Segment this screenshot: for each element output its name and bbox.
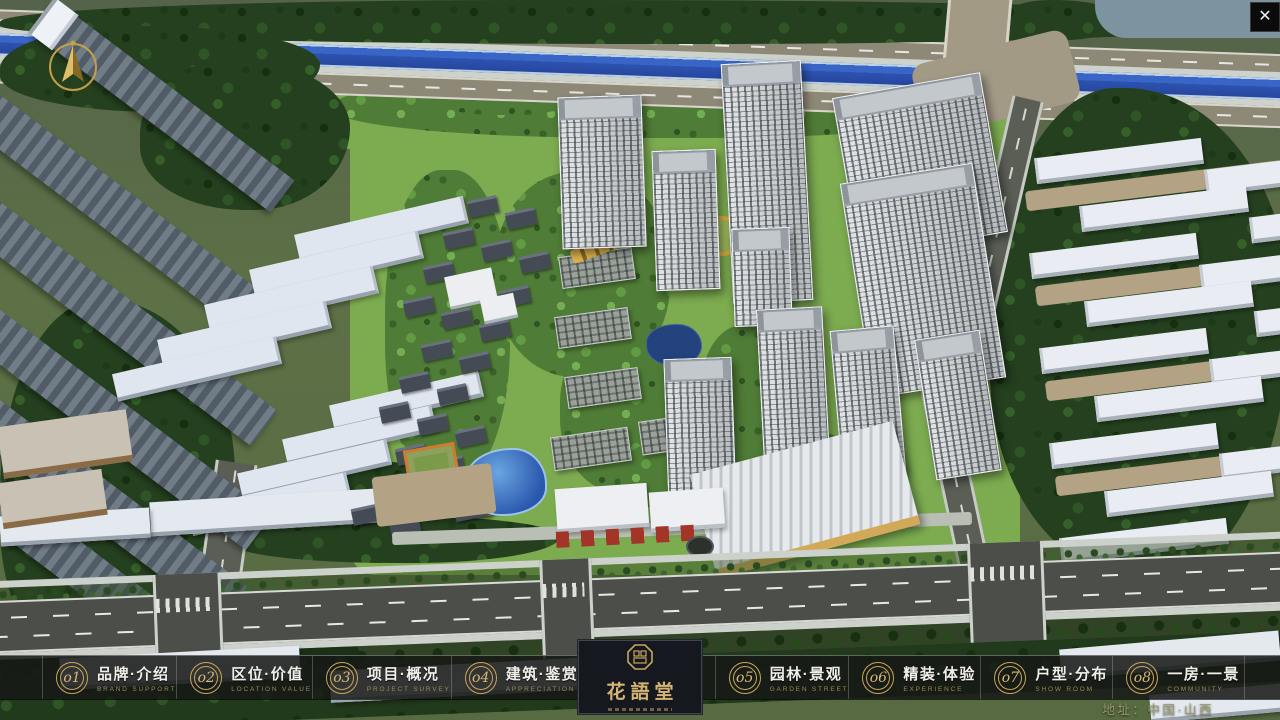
nav-number-badge: o7 (994, 662, 1026, 694)
nav-label-zh: 一房·一景 (1167, 663, 1240, 684)
nav-label-zh: 区位·价值 (231, 663, 312, 684)
residential-tower (756, 306, 830, 461)
project-logo-title: 花語堂 (601, 677, 678, 704)
nav-item-garden-landscape[interactable]: o5 园林·景观 GARDEN STREET (715, 656, 849, 699)
nav-label-en: PROJECT SURVEY (367, 686, 451, 693)
nav-number-badge: o5 (729, 662, 761, 694)
nav-number-badge: o8 (1126, 662, 1158, 694)
entrance-hall (555, 483, 650, 533)
nav-number-badge: o3 (326, 662, 358, 694)
nav-label-zh: 园林·景观 (770, 663, 849, 684)
nav-number-badge: o2 (190, 662, 222, 694)
nav-number: o7 (1002, 671, 1019, 685)
nav-label-zh: 项目·概况 (367, 663, 451, 684)
sales-presentation-window: ✕ o1 品牌·介绍 BRAND SUPPORT o2 区位·价值 LOCATI… (0, 0, 1280, 720)
nav-label-zh: 户型·分布 (1035, 663, 1108, 684)
nav-spacer (1244, 656, 1280, 699)
project-logo-panel[interactable]: 花語堂 (578, 640, 702, 714)
nav-number-badge: o1 (56, 662, 88, 694)
close-button[interactable]: ✕ (1250, 2, 1280, 32)
nav-number: o1 (63, 671, 80, 685)
nav-number: o8 (1134, 671, 1151, 685)
nav-number: o5 (736, 671, 753, 685)
tower-roof (732, 228, 789, 252)
residential-tower (557, 95, 646, 250)
nav-item-floorplan-distribution[interactable]: o7 户型·分布 SHOW ROOM (980, 656, 1112, 699)
nav-number: o4 (472, 671, 489, 685)
tower-roof (653, 150, 716, 174)
tower-roof (558, 96, 641, 121)
cross-road (967, 541, 1047, 643)
nav-label-zh: 精装·体验 (903, 663, 976, 684)
nav-number: o6 (870, 671, 887, 685)
crosswalk (970, 565, 1036, 582)
nav-label-en: APPRECIATION (506, 686, 579, 693)
nav-label-zh: 建筑·鉴赏 (506, 663, 579, 684)
nav-item-interior-experience[interactable]: o6 精装·体验 EXPERIENCE (848, 656, 980, 699)
tower-roof (665, 358, 732, 382)
nav-label-en: GARDEN STREET (770, 686, 849, 693)
residential-tower (652, 149, 721, 291)
nav-item-room-view[interactable]: o8 一房·一景 COMMUNITY (1112, 656, 1244, 699)
tower-roof (722, 61, 801, 87)
project-address: 地址：中国·山西 (1102, 699, 1214, 718)
nav-label-en: SHOW ROOM (1035, 686, 1108, 693)
crosswalk (542, 582, 585, 598)
nav-label-zh: 品牌·介绍 (97, 663, 176, 684)
nav-number: o2 (198, 671, 215, 685)
crosswalk (155, 597, 213, 613)
compass-north-icon (42, 36, 104, 98)
nav-item-brand-intro[interactable]: o1 品牌·介绍 BRAND SUPPORT (42, 656, 176, 699)
seal-icon (627, 644, 653, 675)
nav-label-en: EXPERIENCE (903, 686, 976, 693)
nav-spacer (0, 656, 42, 699)
nav-label-en: BRAND SUPPORT (97, 686, 176, 693)
nav-number-badge: o4 (465, 662, 497, 694)
tower-roof (831, 327, 895, 354)
nav-label-en: COMMUNITY (1167, 686, 1240, 693)
nav-item-architecture[interactable]: o4 建筑·鉴赏 APPRECIATION (451, 656, 583, 699)
logo-tagline-decor (608, 708, 672, 711)
nav-label-en: LOCATION VALUE (231, 686, 312, 693)
site-plan-3d-map[interactable] (0, 0, 1280, 720)
nav-number: o3 (333, 671, 350, 685)
nav-item-project-overview[interactable]: o3 项目·概况 PROJECT SURVEY (312, 656, 451, 699)
nav-number-badge: o6 (862, 662, 894, 694)
tower-roof (757, 307, 822, 332)
nav-item-location-value[interactable]: o2 区位·价值 LOCATION VALUE (176, 656, 312, 699)
